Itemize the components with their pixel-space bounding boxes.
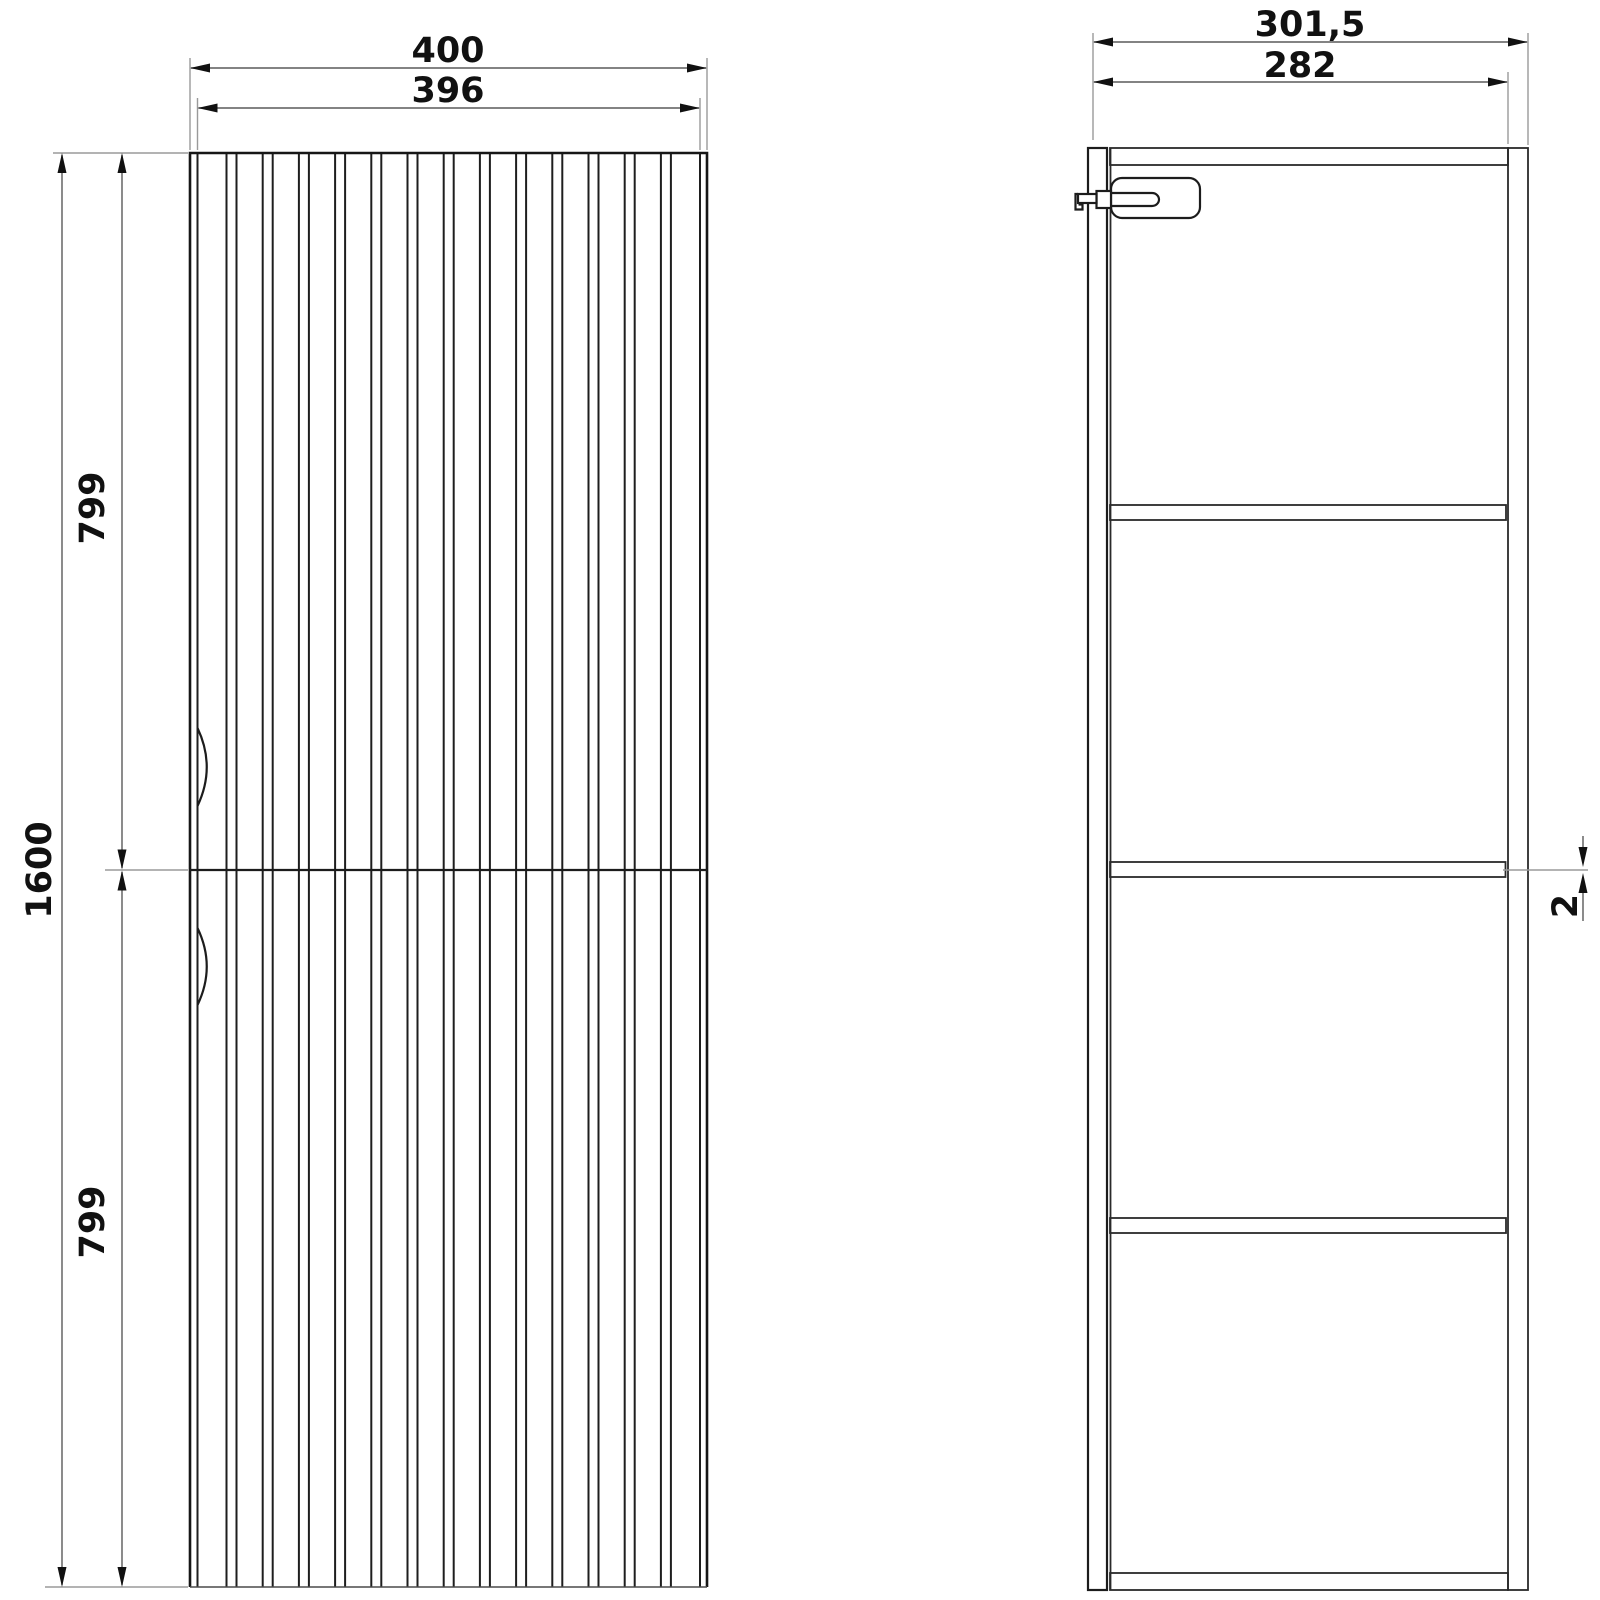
shelf-upper	[1110, 505, 1506, 520]
arrowhead-bottom	[118, 1567, 127, 1587]
arrowhead-top	[58, 153, 67, 173]
drawing-svg: 400 396 1600 799	[0, 0, 1600, 1600]
dim-label-depth-body: 282	[1263, 46, 1336, 86]
cabinet-technical-drawing: 400 396 1600 799	[0, 0, 1600, 1600]
side-view: 301,5 282 2	[1076, 5, 1589, 1590]
top-panel	[1110, 148, 1508, 165]
side-door-panel	[1088, 148, 1107, 1590]
dim-front-width-door: 396	[198, 71, 701, 150]
arrowhead-left	[1093, 38, 1113, 47]
shelf-lower	[1110, 1218, 1506, 1233]
dim-label-depth-overall: 301,5	[1255, 5, 1366, 45]
upper-door-handle	[198, 728, 207, 806]
arrowhead-bottom	[58, 1567, 67, 1587]
arrowhead-right	[687, 64, 707, 73]
arrowhead-left	[1093, 78, 1113, 87]
hinge-bar	[1078, 194, 1097, 203]
dim-label-width-door: 396	[411, 71, 484, 111]
dim-front-height-upper: 799	[73, 153, 188, 870]
back-panel	[1508, 148, 1528, 1590]
arrowhead-down	[1579, 847, 1588, 867]
dim-label-height-upper: 799	[73, 471, 113, 544]
bottom-panel	[1110, 1573, 1508, 1590]
dim-side-back-gap: 2	[1503, 836, 1588, 921]
shelf-middle	[1110, 862, 1506, 877]
arrowhead-bottom	[118, 850, 127, 870]
arrowhead-right	[1508, 38, 1528, 47]
hinge-collar	[1097, 191, 1112, 208]
arrowhead-right	[680, 104, 700, 113]
arrowhead-left	[198, 104, 218, 113]
dim-side-depth-body: 282	[1093, 46, 1508, 144]
arrowhead-right	[1488, 78, 1508, 87]
front-view: 400 396 1600 799	[20, 31, 707, 1587]
hinge-arm	[1111, 193, 1159, 206]
arrowhead-top	[118, 871, 127, 891]
dim-label-height-lower: 799	[73, 1185, 113, 1258]
arrowhead-up	[1579, 873, 1588, 893]
dim-label-height-overall: 1600	[20, 821, 60, 918]
dim-label-back-gap: 2	[1546, 894, 1586, 918]
lower-door-handle	[198, 928, 207, 1005]
dim-label-width-overall: 400	[411, 31, 484, 71]
dim-front-height-lower: 799	[73, 871, 127, 1588]
arrowhead-left	[190, 64, 210, 73]
arrowhead-top	[118, 153, 127, 173]
